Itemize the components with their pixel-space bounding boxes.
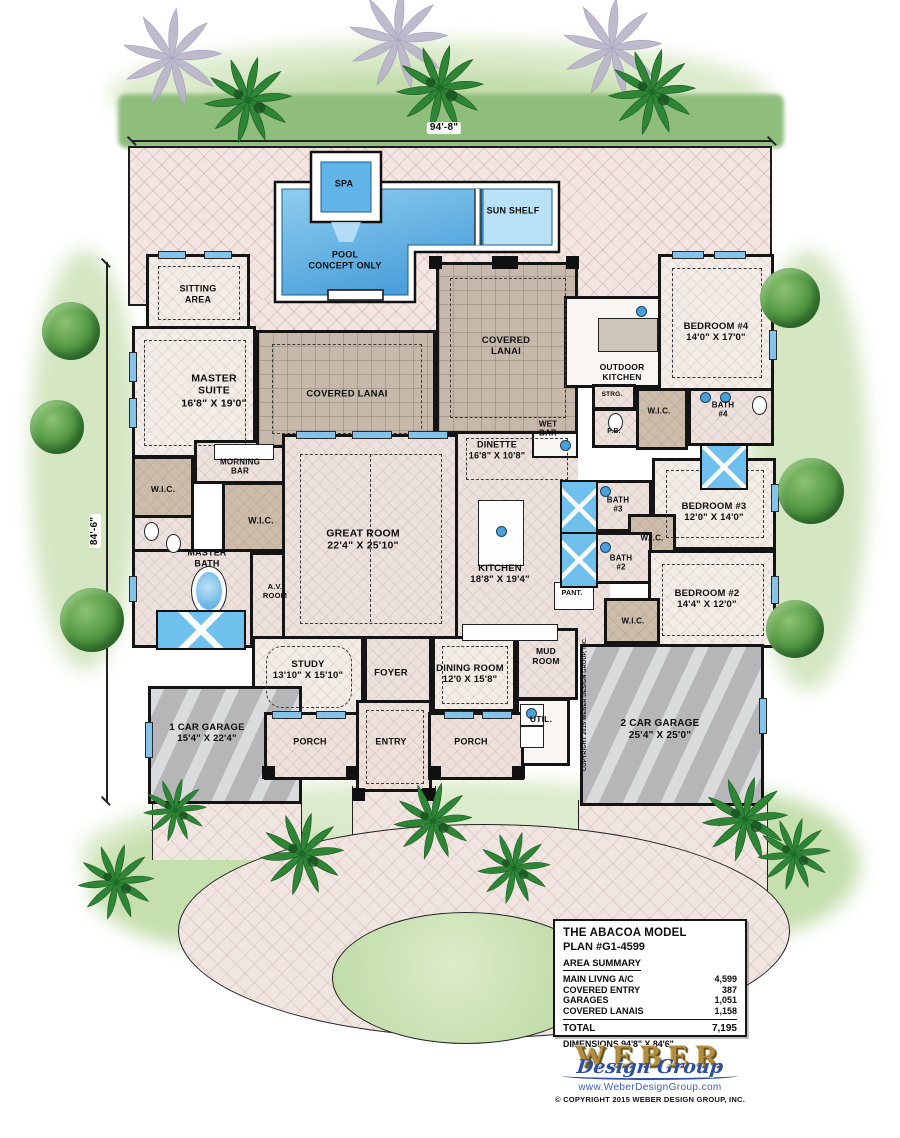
bath3-shower-icon bbox=[560, 480, 598, 536]
weber-design-group-logo: WEBER Design Group www.WeberDesignGroup.… bbox=[540, 1042, 760, 1104]
window bbox=[352, 431, 392, 439]
palm-tree-icon bbox=[200, 52, 296, 148]
room-wic-master-1 bbox=[132, 456, 194, 518]
area-row: COVERED ENTRY 387 bbox=[563, 985, 737, 996]
area-summary-table: MAIN LIVNG A/C 4,599 COVERED ENTRY 387 G… bbox=[563, 974, 737, 1016]
bath4-shower-icon bbox=[700, 444, 748, 490]
column bbox=[429, 256, 442, 269]
pb-toilet-icon bbox=[608, 413, 623, 432]
kitchen-counter bbox=[462, 624, 558, 641]
logo-copyright: © COPYRIGHT 2015 WEBER DESIGN GROUP, INC… bbox=[540, 1095, 760, 1104]
left-dimension-line bbox=[106, 262, 108, 802]
floor-plan-canvas: SPASUN SHELFPOOL CONCEPT ONLYSITTING ARE… bbox=[0, 0, 900, 1138]
window bbox=[204, 251, 232, 259]
master-shower-icon bbox=[156, 610, 246, 650]
area-value: 387 bbox=[722, 985, 737, 996]
total-label: TOTAL bbox=[563, 1023, 595, 1034]
bath4-sink-icon bbox=[700, 392, 711, 403]
room-porch-right bbox=[428, 712, 524, 780]
area-label: COVERED ENTRY bbox=[563, 985, 640, 996]
area-summary-heading: AREA SUMMARY bbox=[563, 958, 641, 971]
window bbox=[672, 251, 704, 259]
tray-bedroom-2 bbox=[662, 564, 764, 636]
room-wic-bed2 bbox=[604, 598, 660, 644]
area-value: 1,051 bbox=[714, 995, 737, 1006]
bush-icon bbox=[760, 268, 820, 328]
bath3-sink-icon bbox=[600, 486, 611, 497]
area-label: COVERED LANAIS bbox=[563, 1006, 644, 1017]
dryer-icon bbox=[520, 726, 544, 748]
toilet-icon bbox=[144, 522, 159, 541]
window bbox=[769, 330, 777, 360]
window bbox=[482, 711, 512, 719]
bath4-toilet-icon bbox=[752, 396, 767, 415]
window bbox=[129, 576, 137, 602]
bidet-icon bbox=[166, 534, 181, 553]
window bbox=[129, 352, 137, 382]
window bbox=[444, 711, 474, 719]
room-strg bbox=[592, 384, 636, 410]
logo-script: Design Group bbox=[539, 1056, 761, 1078]
outdoor-sink-icon bbox=[636, 306, 647, 317]
tray-sitting bbox=[158, 266, 240, 320]
logo-website: www.WeberDesignGroup.com bbox=[540, 1082, 760, 1093]
morning-bar-counter bbox=[214, 444, 274, 460]
bath4-sink-icon bbox=[720, 392, 731, 403]
tray-dinette bbox=[466, 438, 568, 480]
column bbox=[346, 766, 359, 779]
island-sink-icon bbox=[496, 526, 507, 537]
area-total-row: TOTAL 7,195 bbox=[563, 1019, 737, 1034]
palm-tree-icon bbox=[474, 828, 554, 908]
tray-study bbox=[266, 646, 352, 708]
window bbox=[129, 398, 137, 428]
util-sink-icon bbox=[526, 708, 537, 719]
tray-great-room-divider bbox=[370, 454, 371, 622]
palm-tree-icon bbox=[140, 775, 210, 845]
tray-master bbox=[144, 340, 246, 446]
area-row: COVERED LANAIS 1,158 bbox=[563, 1006, 737, 1017]
window bbox=[158, 251, 186, 259]
column bbox=[566, 256, 579, 269]
column bbox=[512, 766, 525, 779]
palm-tree-icon bbox=[604, 44, 700, 140]
window bbox=[714, 251, 746, 259]
area-label: GARAGES bbox=[563, 995, 609, 1006]
window bbox=[272, 711, 302, 719]
area-value: 4,599 bbox=[714, 974, 737, 985]
area-row: GARAGES 1,051 bbox=[563, 995, 737, 1006]
palm-tree-icon bbox=[392, 40, 488, 136]
window bbox=[771, 576, 779, 604]
tray-bedroom-4 bbox=[672, 268, 762, 378]
wet-bar-sink-icon bbox=[560, 440, 571, 451]
column bbox=[352, 788, 365, 801]
plan-title: THE ABACOA MODEL bbox=[563, 927, 737, 939]
total-value: 7,195 bbox=[712, 1023, 737, 1034]
palm-tree-icon bbox=[754, 814, 834, 894]
palm-tree-icon bbox=[256, 808, 348, 900]
window bbox=[759, 698, 767, 734]
bush-icon bbox=[60, 588, 124, 652]
area-row: MAIN LIVNG A/C 4,599 bbox=[563, 974, 737, 985]
tray-lanai-center bbox=[450, 278, 566, 418]
tray-great-room bbox=[300, 454, 442, 624]
palm-tree-icon bbox=[390, 778, 476, 864]
area-value: 1,158 bbox=[714, 1006, 737, 1017]
bath2-sink-icon bbox=[600, 542, 611, 553]
window bbox=[296, 431, 336, 439]
window bbox=[408, 431, 448, 439]
tray-lanai-left bbox=[272, 344, 422, 434]
window bbox=[316, 711, 346, 719]
bathtub-icon bbox=[191, 566, 227, 616]
palm-tree-icon bbox=[74, 840, 158, 924]
area-label: MAIN LIVNG A/C bbox=[563, 974, 634, 985]
room-wic-bed4 bbox=[636, 388, 688, 450]
tray-entry bbox=[366, 710, 424, 784]
bush-icon bbox=[30, 400, 84, 454]
column bbox=[492, 256, 518, 269]
bush-icon bbox=[42, 302, 100, 360]
title-block: THE ABACOA MODEL PLAN #G1-4599 AREA SUMM… bbox=[553, 919, 747, 1037]
plan-number: PLAN #G1-4599 bbox=[563, 941, 737, 953]
bush-icon bbox=[778, 458, 844, 524]
bath2-shower-icon bbox=[560, 532, 598, 588]
window bbox=[145, 722, 153, 758]
tray-dining bbox=[442, 646, 508, 704]
outdoor-kitchen-counter bbox=[598, 318, 658, 352]
bush-icon bbox=[766, 600, 824, 658]
column bbox=[262, 766, 275, 779]
